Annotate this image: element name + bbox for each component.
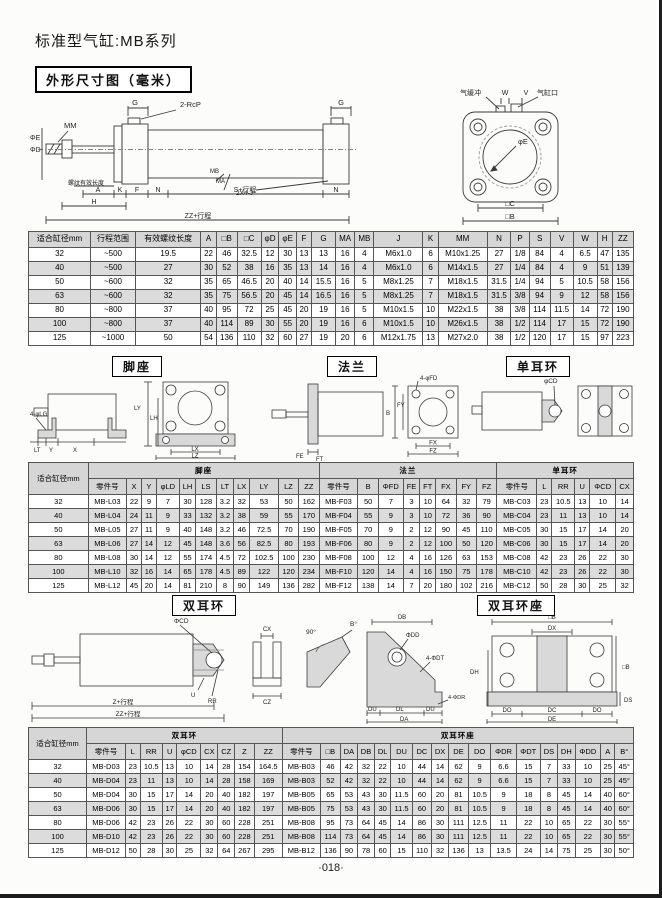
column-header: DC [412, 744, 431, 760]
value-cell: 14 [201, 774, 218, 788]
page-title: 标准型气缸:MB系列 [35, 30, 177, 51]
value-cell: 17 [162, 802, 176, 816]
value-cell: 10.5 [552, 495, 575, 509]
value-cell: 64 [357, 816, 374, 830]
value-cell: 6.6 [491, 774, 516, 788]
label-dim-dl: DL [396, 707, 404, 713]
value-cell: 26 [162, 830, 176, 844]
value-cell: 26 [162, 816, 176, 830]
foot-mount-drawing: 4-φLG LT Y X LY LH LX LZ [28, 372, 263, 460]
value-cell: 22 [575, 830, 600, 844]
value-cell: 100 [278, 551, 298, 565]
value-cell: 9 [468, 774, 490, 788]
value-cell: M6x1.0 [374, 262, 423, 276]
value-cell: ~500 [91, 248, 136, 262]
value-cell: 40 [201, 304, 216, 318]
group-header: 法兰 [319, 463, 497, 479]
column-header: U [575, 479, 590, 495]
value-cell: 295 [254, 844, 282, 858]
value-cell: 50 [456, 537, 476, 551]
value-cell: 22 [516, 830, 540, 844]
value-cell: 9 [156, 523, 179, 537]
value-cell: 20 [201, 788, 218, 802]
value-cell: 45 [375, 830, 391, 844]
value-cell: M18x1.5 [438, 276, 487, 290]
column-header: ZZ [299, 479, 319, 495]
value-cell: 16.5 [312, 290, 336, 304]
value-cell: 22 [590, 565, 616, 579]
label-fd-holes: 4-φFD [420, 376, 438, 382]
value-cell: 25 [575, 844, 600, 858]
value-cell: 45 [127, 579, 142, 593]
group-header: 单耳环 [497, 463, 634, 479]
label-port-g-left: G [132, 98, 138, 107]
value-cell: 3 [403, 509, 420, 523]
value-cell: 63 [456, 551, 476, 565]
value-cell: 111 [449, 816, 469, 830]
value-cell: MB-L05 [88, 523, 126, 537]
column-header: LS [196, 479, 216, 495]
label-dim-f: F [135, 187, 139, 194]
value-cell: 4 [355, 262, 374, 276]
value-cell: 234 [299, 565, 319, 579]
value-cell: 30 [201, 816, 218, 830]
bore-cell: 63 [29, 290, 91, 304]
value-cell: 11 [491, 830, 516, 844]
value-cell: 30 [162, 844, 176, 858]
catalog-page: 标准型气缸:MB系列 外形尺寸图（毫米） [0, 0, 662, 898]
value-cell: 14 [431, 774, 448, 788]
value-cell: 13.5 [491, 844, 516, 858]
value-cell: 84 [529, 262, 550, 276]
column-header: A [600, 744, 614, 760]
value-cell: 45 [456, 523, 476, 537]
value-cell: 65 [179, 565, 196, 579]
column-header: FE [403, 479, 420, 495]
column-header: G [312, 232, 336, 248]
value-cell: MB-F05 [319, 523, 358, 537]
column-header: L [537, 479, 552, 495]
value-cell: 15 [552, 537, 575, 551]
value-cell: 14 [378, 565, 403, 579]
column-header: □C [237, 232, 261, 248]
value-cell: 4 [403, 565, 420, 579]
value-cell: 12 [156, 537, 179, 551]
value-cell: 58 [597, 276, 612, 290]
value-cell: 30 [537, 523, 552, 537]
value-cell: 10.5 [468, 802, 490, 816]
value-cell: 15 [573, 318, 597, 332]
value-cell: 14 [296, 290, 311, 304]
bore-cell: 125 [29, 844, 87, 858]
value-cell: M27x2.0 [438, 332, 487, 346]
label-dim-y: Y [49, 448, 53, 454]
value-cell: 13 [468, 844, 490, 858]
value-cell: 32 [261, 332, 279, 346]
column-header: DE [449, 744, 469, 760]
value-cell: 94 [529, 290, 550, 304]
column-header: LH [179, 479, 196, 495]
value-cell: 148 [196, 523, 216, 537]
column-header: MM [438, 232, 487, 248]
column-header: 零件号 [497, 479, 537, 495]
clevis-bracket-drawing: 90° B° DB ΦDD 4-ΦDT DU DL DU DA 4-ΦDR □B… [302, 612, 647, 724]
value-cell: 170 [299, 509, 319, 523]
value-cell: 22 [127, 495, 142, 509]
value-cell: 20 [261, 290, 279, 304]
value-cell: 19 [312, 332, 336, 346]
value-cell: 19 [312, 304, 336, 318]
value-cell: 43 [357, 802, 374, 816]
value-cell: 5 [550, 276, 573, 290]
table-row: 80MB-L08301412551744.572102.5100230MB-F0… [29, 551, 634, 565]
bore-cell: 50 [29, 276, 91, 290]
value-cell: 136 [278, 579, 298, 593]
value-cell: 120 [278, 565, 298, 579]
value-cell: 6.6 [491, 760, 516, 774]
table-row: 40~5002730523816351314164M6x1.06M14x1.52… [29, 262, 634, 276]
value-cell: 11 [140, 774, 162, 788]
label-rod-thread-mm: MM [64, 121, 77, 130]
value-cell: 7 [403, 579, 420, 593]
value-cell: 24 [127, 509, 142, 523]
label-dim-v: V [524, 90, 529, 97]
value-cell: MB-B08 [282, 816, 320, 830]
value-cell: 32 [135, 290, 200, 304]
value-cell: 14 [575, 802, 600, 816]
value-cell: MB-C04 [497, 509, 537, 523]
value-cell: 22 [575, 816, 600, 830]
value-cell: 32.5 [237, 248, 261, 262]
value-cell: 42 [340, 774, 357, 788]
value-cell: 4 [550, 248, 573, 262]
value-cell: 10.5 [468, 788, 490, 802]
value-cell: 9 [550, 290, 573, 304]
value-cell: M14x1.5 [438, 262, 487, 276]
value-cell: 42 [126, 816, 140, 830]
column-header: ZZ [254, 744, 282, 760]
value-cell: 14 [391, 830, 413, 844]
value-cell: 40 [201, 318, 216, 332]
value-cell: 14 [616, 495, 634, 509]
value-cell: 156 [612, 276, 633, 290]
column-header: S [529, 232, 550, 248]
value-cell: 9 [378, 537, 403, 551]
value-cell: 32 [234, 495, 250, 509]
cylinder-end-view-drawing: 气缓冲 W V 气缸口 φE □C □B [438, 82, 638, 230]
value-cell: 16 [420, 551, 436, 565]
label-angle-b: B° [350, 620, 357, 628]
value-cell: 40 [279, 276, 296, 290]
value-cell: 50 [358, 495, 378, 509]
value-cell: MB-D12 [87, 844, 126, 858]
value-cell: MB-D10 [87, 830, 126, 844]
value-cell: 55 [358, 509, 378, 523]
value-cell: 30 [600, 816, 614, 830]
label-dim-dd: ΦDD [406, 633, 420, 639]
value-cell: 13 [296, 248, 311, 262]
value-cell: 15 [391, 844, 413, 858]
value-cell: 16 [335, 248, 354, 262]
value-cell: 30 [201, 830, 218, 844]
value-cell: 10.5 [573, 276, 597, 290]
column-header: V [550, 232, 573, 248]
label-dim-fz: FZ [429, 449, 437, 455]
value-cell: 44 [412, 774, 431, 788]
value-cell: MB-L12 [88, 579, 126, 593]
column-header: ΦDT [516, 744, 540, 760]
value-cell: MB-B03 [282, 774, 320, 788]
value-cell: 28 [218, 774, 235, 788]
value-cell: 13 [162, 774, 176, 788]
value-cell: MB-L04 [88, 509, 126, 523]
value-cell: 102.5 [250, 551, 279, 565]
value-cell: 7 [378, 495, 403, 509]
value-cell: 14 [575, 788, 600, 802]
value-cell: 40 [218, 802, 235, 816]
value-cell: 50 [135, 332, 200, 346]
label-dim-da: DA [400, 717, 408, 723]
column-header: φLD [156, 479, 179, 495]
value-cell: 5 [355, 276, 374, 290]
value-cell: 15 [140, 802, 162, 816]
value-cell: 73 [340, 816, 357, 830]
value-cell: 148 [196, 537, 216, 551]
bore-cell: 63 [29, 537, 89, 551]
column-header: CX [201, 744, 218, 760]
value-cell: 10 [420, 495, 436, 509]
value-cell: 42 [537, 551, 552, 565]
value-cell: 70 [278, 523, 298, 537]
value-cell: 75 [456, 565, 476, 579]
value-cell: 43 [357, 788, 374, 802]
value-cell: 16 [335, 318, 354, 332]
value-cell: 10 [423, 304, 438, 318]
value-cell: 81 [179, 579, 196, 593]
bore-cell: 32 [29, 248, 91, 262]
value-cell: 9 [573, 262, 597, 276]
value-cell: M22x1.5 [438, 304, 487, 318]
value-cell: 17 [162, 788, 176, 802]
clevis-dimension-table: 适合缸径mm双耳环双耳环座零件号LRRUφCDCXCZZZZ零件号□BDADBD… [28, 727, 634, 858]
value-cell: 14 [590, 537, 616, 551]
value-cell: 164.5 [254, 760, 282, 774]
value-cell: 40 [218, 788, 235, 802]
value-cell: 60 [412, 802, 431, 816]
value-cell: 37 [135, 318, 200, 332]
label-dim-b: B [386, 411, 390, 417]
value-cell: 45 [279, 304, 296, 318]
value-cell: 82.5 [250, 537, 279, 551]
label-phi-d: ΦD [30, 147, 41, 154]
value-cell: 23 [126, 760, 140, 774]
value-cell: 25 [590, 579, 616, 593]
value-cell: 197 [254, 802, 282, 816]
value-cell: 89 [234, 565, 250, 579]
value-cell: MB-C06 [497, 537, 537, 551]
value-cell: 14 [156, 565, 179, 579]
bore-cell: 63 [29, 802, 87, 816]
value-cell: 16 [335, 262, 354, 276]
value-cell: MB-C03 [497, 495, 537, 509]
value-cell: 7 [540, 774, 557, 788]
value-cell: 32 [201, 844, 218, 858]
value-cell: 12 [573, 290, 597, 304]
value-cell: 193 [299, 537, 319, 551]
value-cell: 30 [261, 318, 279, 332]
value-cell: 13 [575, 509, 590, 523]
value-cell: 10 [177, 774, 201, 788]
table-row: 125MB-L1245201481210890149136282MB-F1213… [29, 579, 634, 593]
column-header: MA [335, 232, 354, 248]
column-header: K [423, 232, 438, 248]
value-cell: 23 [140, 816, 162, 830]
column-header: RR [552, 479, 575, 495]
label-dim-de: DE [548, 717, 556, 723]
label-dr-holes: 4-ΦDR [448, 695, 465, 701]
value-cell: 230 [299, 551, 319, 565]
label-dim-cd: φCD [544, 378, 558, 385]
value-cell: 114 [529, 318, 550, 332]
value-cell: 10 [590, 495, 616, 509]
value-cell: 11.5 [391, 802, 413, 816]
value-cell: 81 [449, 802, 469, 816]
value-cell: 22 [201, 248, 216, 262]
label-dim-cz: CZ [263, 700, 271, 706]
value-cell: 72 [597, 304, 612, 318]
value-cell: 94 [529, 276, 550, 290]
value-cell: 32 [456, 495, 476, 509]
label-dim-do2: DO [593, 708, 602, 714]
value-cell: 79 [476, 495, 496, 509]
column-header: CX [616, 479, 634, 495]
value-cell: 22 [375, 760, 391, 774]
value-cell: MB-C05 [497, 523, 537, 537]
value-cell: MB-F04 [319, 509, 358, 523]
value-cell: 58 [597, 290, 612, 304]
value-cell: 11.5 [550, 304, 573, 318]
value-cell: 46 [321, 760, 341, 774]
value-cell: 90 [340, 844, 357, 858]
label-dim-lx: LX [191, 447, 198, 453]
value-cell: 9 [378, 509, 403, 523]
label-port-g-right: G [338, 98, 344, 107]
value-cell: MB-L03 [88, 495, 126, 509]
column-header: MB [355, 232, 374, 248]
value-cell: 27 [127, 523, 142, 537]
value-cell: 14 [177, 802, 201, 816]
value-cell: 120 [476, 537, 496, 551]
column-header: Y [141, 479, 156, 495]
value-cell: MB-F08 [319, 551, 358, 565]
value-cell: 9 [491, 788, 516, 802]
column-header: DO [468, 744, 490, 760]
value-cell: 16 [335, 276, 354, 290]
column-header: DX [431, 744, 448, 760]
value-cell: 12.5 [468, 830, 490, 844]
column-header: ΦDD [575, 744, 600, 760]
value-cell: 42 [537, 565, 552, 579]
value-cell: 14 [156, 579, 179, 593]
label-dim-cd: ΦCD [174, 618, 189, 625]
value-cell: 149 [250, 579, 279, 593]
label-port-name: 气缸口 [537, 88, 558, 97]
label-dim-fe: FE [296, 454, 304, 460]
value-cell: 55° [615, 816, 634, 830]
value-cell: MB-D06 [87, 802, 126, 816]
value-cell: M26x1.5 [438, 318, 487, 332]
value-cell: M8x1.25 [374, 290, 423, 304]
value-cell: 32 [357, 774, 374, 788]
value-cell: 138 [358, 579, 378, 593]
bore-cell: 50 [29, 523, 89, 537]
value-cell: 55 [179, 551, 196, 565]
value-cell: 14 [378, 579, 403, 593]
value-cell: MB-F10 [319, 565, 358, 579]
column-header: LZ [278, 479, 298, 495]
label-dim-square-b: □B [505, 212, 515, 221]
value-cell: 60 [412, 788, 431, 802]
value-cell: 36 [456, 509, 476, 523]
label-dim-do1: DO [503, 708, 512, 714]
value-cell: 25 [177, 844, 201, 858]
value-cell: MB-B05 [282, 788, 320, 802]
value-cell: 10 [420, 509, 436, 523]
column-header: P [511, 232, 529, 248]
value-cell: 14 [616, 509, 634, 523]
value-cell: 114 [321, 830, 341, 844]
value-cell: 4.5 [216, 565, 234, 579]
value-cell: 216 [476, 579, 496, 593]
value-cell: 17 [575, 537, 590, 551]
value-cell: 14 [391, 816, 413, 830]
table-row: 63MB-D06301517142040182197MB-B0575534330… [29, 802, 634, 816]
value-cell: 14 [141, 537, 156, 551]
value-cell: M10x1.25 [438, 248, 487, 262]
value-cell: 80 [278, 537, 298, 551]
value-cell: 7 [156, 495, 179, 509]
column-header: FZ [476, 479, 496, 495]
column-header: FT [420, 479, 436, 495]
value-cell: 26 [575, 551, 590, 565]
value-cell: 20 [431, 802, 448, 816]
value-cell: 197 [254, 788, 282, 802]
value-cell: 62 [449, 760, 469, 774]
value-cell: 19 [312, 318, 336, 332]
value-cell: 5 [355, 304, 374, 318]
value-cell: 56 [234, 537, 250, 551]
value-cell: 32 [135, 276, 200, 290]
value-cell: 90 [234, 579, 250, 593]
value-cell: 25 [261, 304, 279, 318]
figure-title-clevis-bracket: 双耳环座 [477, 595, 555, 616]
value-cell: 20 [616, 523, 634, 537]
cylinder-side-view-drawing: MM G 2-RcP G ΦE ΦD 螺纹有效长度 MB MA 2X4-J A … [28, 82, 434, 230]
table-row: 100MB-L10321614651784.589122120234MB-F10… [29, 565, 634, 579]
table-row: 125MB-D12502830253264267295MB-B121369078… [29, 844, 634, 858]
value-cell: 72 [237, 304, 261, 318]
value-cell: 8 [540, 802, 557, 816]
value-cell: 30 [616, 565, 634, 579]
value-cell: 25 [600, 760, 614, 774]
column-header: A [201, 232, 216, 248]
value-cell: 11.5 [391, 788, 413, 802]
value-cell: 23 [552, 551, 575, 565]
value-cell: 100 [436, 537, 456, 551]
value-cell: 55 [278, 509, 298, 523]
value-cell: 27 [296, 332, 311, 346]
value-cell: 31.5 [487, 276, 511, 290]
